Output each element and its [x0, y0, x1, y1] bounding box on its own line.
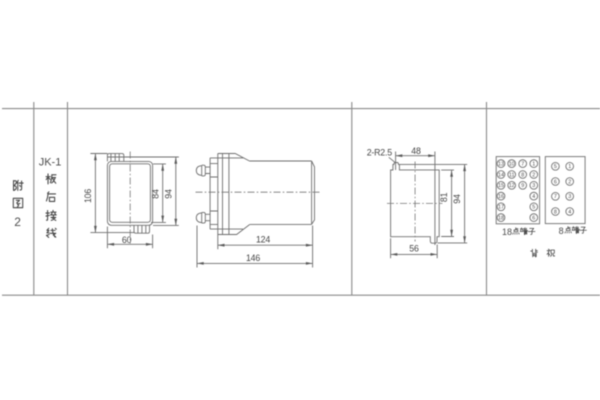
svg-text:13: 13 [498, 162, 504, 168]
svg-text:3: 3 [568, 194, 571, 200]
svg-text:8: 8 [554, 209, 557, 215]
svg-text:60: 60 [122, 235, 132, 245]
svg-text:2: 2 [568, 179, 571, 185]
svg-text:6: 6 [554, 179, 557, 185]
svg-text:17: 17 [498, 205, 504, 211]
svg-text:11: 11 [509, 172, 515, 178]
svg-text:18: 18 [502, 227, 512, 237]
svg-text:18: 18 [498, 216, 504, 222]
svg-text:12: 12 [509, 183, 515, 189]
svg-text:7: 7 [554, 194, 557, 200]
svg-text:94: 94 [163, 189, 173, 199]
svg-text:106: 106 [83, 189, 93, 203]
svg-text:81: 81 [439, 192, 449, 202]
svg-text:10: 10 [509, 162, 515, 168]
svg-text:8: 8 [521, 172, 524, 178]
svg-text:3: 3 [532, 183, 535, 189]
svg-text:15: 15 [498, 183, 504, 189]
svg-text:9: 9 [521, 183, 524, 189]
svg-text:JK-1: JK-1 [39, 156, 62, 168]
svg-text:14: 14 [498, 172, 504, 178]
svg-text:2: 2 [532, 172, 535, 178]
svg-text:5: 5 [554, 164, 557, 170]
svg-text:56: 56 [409, 244, 419, 254]
svg-text:1: 1 [568, 164, 571, 170]
svg-text:84: 84 [151, 189, 161, 199]
svg-text:4: 4 [532, 194, 535, 200]
svg-text:146: 146 [246, 253, 260, 263]
svg-text:16: 16 [498, 194, 504, 200]
svg-text:2: 2 [14, 215, 21, 229]
svg-text:1: 1 [532, 162, 535, 168]
svg-text:7: 7 [521, 162, 524, 168]
svg-text:2-R2.5: 2-R2.5 [367, 148, 393, 158]
svg-text:48: 48 [411, 146, 421, 156]
svg-text:6: 6 [532, 216, 535, 222]
svg-text:4: 4 [568, 209, 571, 215]
svg-text:94: 94 [452, 194, 462, 204]
svg-text:5: 5 [532, 205, 535, 211]
svg-text:124: 124 [256, 235, 270, 245]
svg-text:8: 8 [559, 226, 564, 236]
